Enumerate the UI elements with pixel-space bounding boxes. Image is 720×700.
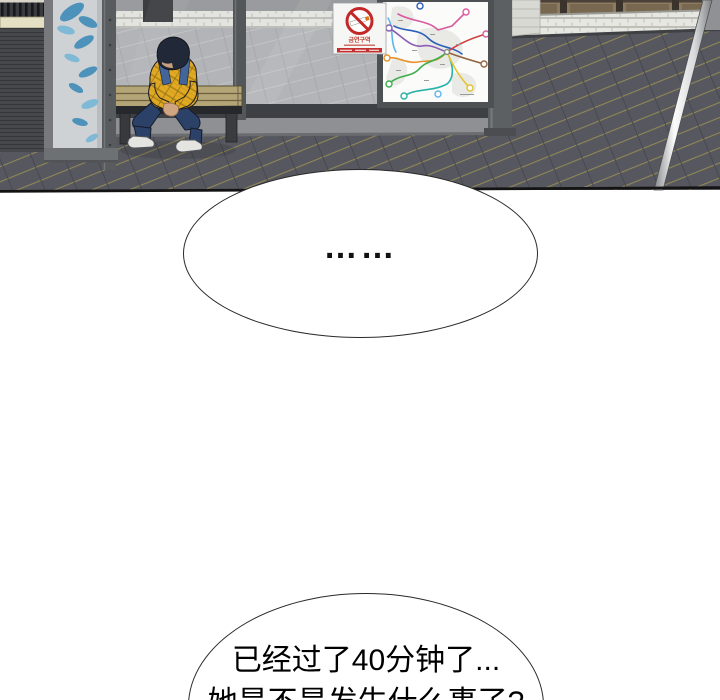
dialogue-line-2: 她是不是发生什么事了? — [189, 682, 543, 700]
ellipsis-text: …… — [324, 228, 398, 267]
person-head — [157, 37, 189, 70]
comic-panel-illustration: 금연구역 — [0, 0, 720, 193]
no-smoking-label: 금연구역 — [348, 36, 370, 44]
comic-page: 금연구역 — [0, 0, 720, 700]
no-smoking-sign: 금연구역 — [333, 3, 386, 54]
left-wall — [0, 0, 118, 170]
shutter-wall — [0, 28, 46, 152]
bus-stop-illustration: 금연구역 — [0, 0, 720, 193]
person-hands — [163, 103, 178, 116]
speech-bubble-dialogue: 已经过了40分钟了... 她是不是发生什么事了? — [188, 593, 544, 700]
subway-map-poster — [377, 0, 494, 108]
cream-band — [0, 17, 46, 28]
fence — [0, 0, 46, 17]
dialogue-line-1: 已经过了40分钟了... — [189, 640, 543, 682]
speech-bubble-ellipsis: …… — [183, 169, 538, 338]
